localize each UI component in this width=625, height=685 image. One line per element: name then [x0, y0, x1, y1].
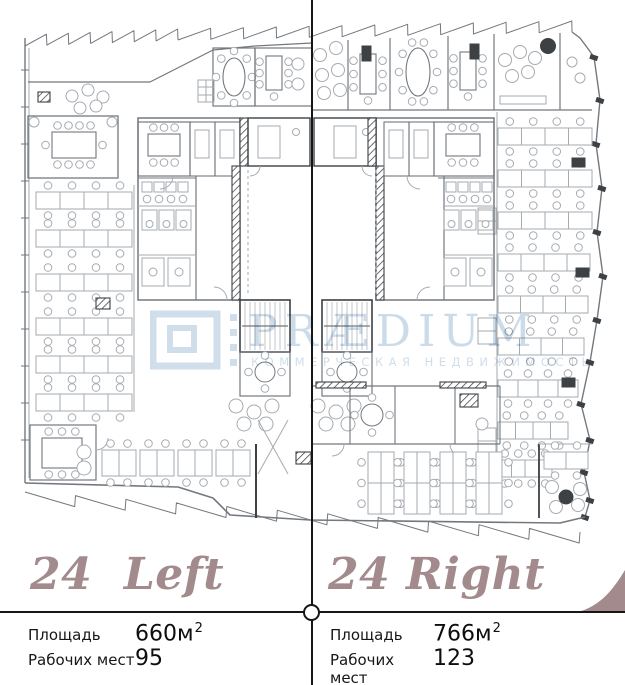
- meeting-rooms-top-right: [314, 33, 586, 110]
- right-seats-row: Рабочих мест 123: [330, 646, 475, 685]
- atrium-center-rooms: [240, 118, 376, 296]
- core-left: [138, 118, 240, 300]
- section-left-title: 24 Left: [30, 549, 224, 600]
- right-area-row: Площадь 766м2: [330, 621, 501, 646]
- left-seats-row: Рабочих мест 95: [28, 646, 163, 671]
- divider-node-circle: [303, 604, 320, 621]
- left-seats-value: 95: [135, 646, 163, 671]
- left-seats-label: Рабочих мест: [28, 651, 135, 669]
- left-area-label: Площадь: [28, 626, 135, 644]
- left-area-value: 660м2: [135, 621, 203, 646]
- right-area-label: Площадь: [330, 626, 433, 644]
- core-right: [376, 118, 494, 300]
- left-wing-desks: [36, 182, 134, 422]
- floorplan-sheet: PRÆDIUM КОММЕРЧЕСКАЯ НЕДВИЖИМОСТЬ 24 Lef…: [0, 0, 625, 685]
- section-right-title: 24 Right: [328, 549, 545, 600]
- right-wing-desks: [478, 112, 592, 487]
- right-seats-value: 123: [433, 646, 475, 671]
- right-area-value: 766м2: [433, 621, 501, 646]
- left-area-row: Площадь 660м2: [28, 621, 203, 646]
- right-seats-label: Рабочих мест: [330, 651, 433, 685]
- center-divider-line: [311, 0, 313, 685]
